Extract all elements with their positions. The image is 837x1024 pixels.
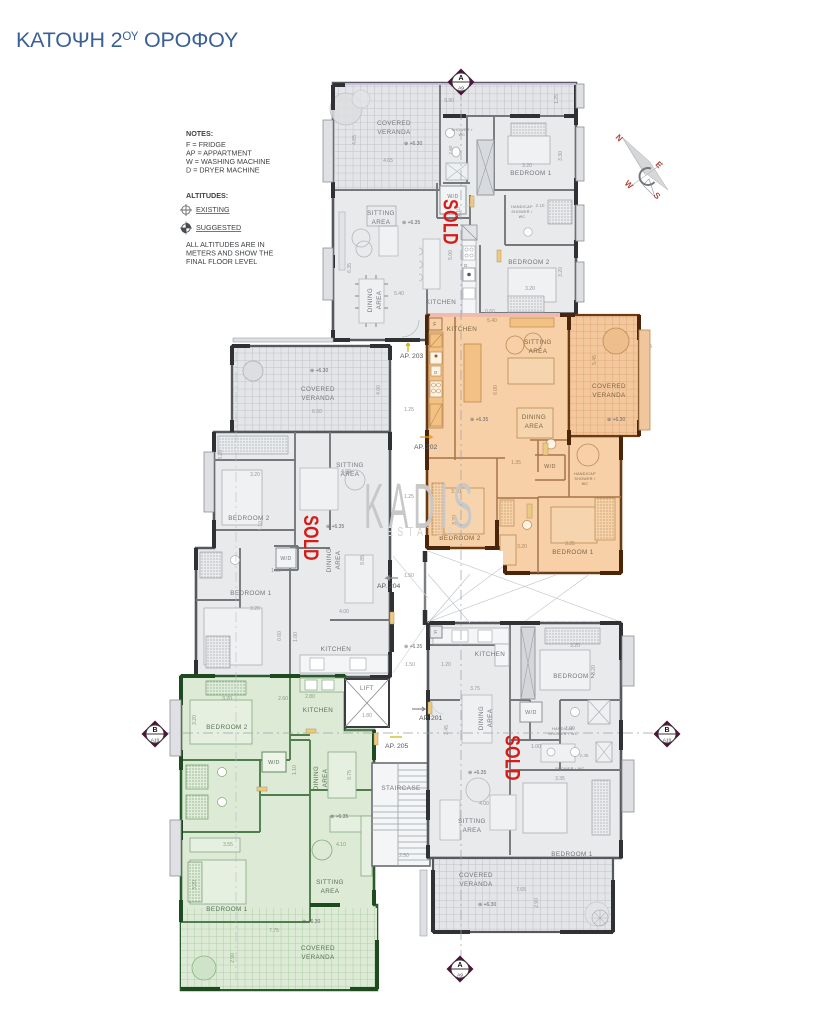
svg-text:⊕ +6.35: ⊕ +6.35	[402, 220, 420, 226]
svg-text:COVERED: COVERED	[592, 383, 626, 390]
svg-text:5.00: 5.00	[448, 250, 454, 260]
svg-text:COVERED: COVERED	[301, 945, 335, 952]
svg-text:SHOWER / WC: SHOWER / WC	[548, 732, 578, 736]
svg-text:3.20: 3.20	[570, 643, 580, 649]
svg-text:B: B	[664, 727, 669, 734]
svg-text:6.50: 6.50	[312, 409, 322, 415]
svg-text:F: F	[433, 322, 436, 328]
svg-text:DINING: DINING	[367, 288, 374, 312]
svg-text:SHOWER /: SHOWER /	[451, 128, 472, 132]
svg-text:BEDROOM 2: BEDROOM 2	[553, 673, 594, 680]
svg-text:SOLD: SOLD	[501, 735, 525, 781]
svg-text:1.00: 1.00	[271, 568, 281, 574]
svg-text:VERANDA: VERANDA	[301, 954, 335, 961]
svg-text:⊕ +6.35: ⊕ +6.35	[330, 814, 348, 820]
svg-text:5.45: 5.45	[592, 355, 598, 365]
svg-text:1.25: 1.25	[554, 94, 560, 104]
svg-text:COVERED: COVERED	[459, 872, 493, 879]
svg-text:BEDROOM 1: BEDROOM 1	[551, 851, 592, 858]
svg-text:2.45: 2.45	[580, 753, 589, 758]
svg-text:ALTITUDES:: ALTITUDES:	[186, 191, 228, 200]
svg-text:DINING: DINING	[326, 548, 333, 572]
svg-text:HANDICAP: HANDICAP	[574, 472, 596, 476]
svg-text:1.00: 1.00	[293, 632, 299, 642]
svg-text:AREA: AREA	[525, 423, 544, 430]
svg-text:9.90: 9.90	[444, 98, 454, 104]
svg-text:ΚΑΤΟΨΗ 2ΟΥ ΟΡΟΦΟΥ: ΚΑΤΟΨΗ 2ΟΥ ΟΡΟΦΟΥ	[16, 28, 238, 52]
svg-text:KITCHEN: KITCHEN	[321, 646, 351, 653]
svg-text:AP. 201: AP. 201	[419, 715, 443, 722]
svg-text:DINING: DINING	[478, 706, 485, 730]
svg-text:1.20: 1.20	[441, 662, 451, 668]
svg-text:4.65: 4.65	[352, 135, 358, 145]
svg-text:KITCHEN: KITCHEN	[475, 651, 505, 658]
svg-text:3.20: 3.20	[558, 267, 564, 277]
svg-text:1.35: 1.35	[511, 460, 521, 466]
svg-text:LIFT: LIFT	[360, 686, 374, 692]
svg-text:6.35: 6.35	[347, 263, 353, 273]
svg-text:A10: A10	[663, 738, 672, 744]
svg-text:2.80: 2.80	[305, 694, 315, 700]
svg-text:SITTING: SITTING	[367, 210, 395, 217]
svg-text:⊕ +6.35: ⊕ +6.35	[404, 644, 422, 650]
svg-text:VERANDA: VERANDA	[459, 881, 493, 888]
svg-text:AREA: AREA	[321, 888, 340, 895]
svg-text:7.65: 7.65	[516, 887, 526, 893]
svg-text:BEDROOM 2: BEDROOM 2	[228, 515, 269, 522]
svg-text:3.35: 3.35	[565, 541, 575, 547]
svg-text:⊕ +6.35: ⊕ +6.35	[470, 417, 488, 423]
svg-text:AP. 202: AP. 202	[414, 444, 438, 451]
svg-text:ESTATES: ESTATES	[387, 526, 457, 540]
svg-text:3.55: 3.55	[223, 842, 233, 848]
svg-text:0.60: 0.60	[277, 631, 283, 641]
svg-text:1.90: 1.90	[565, 726, 575, 732]
svg-text:A: A	[458, 75, 463, 82]
svg-text:W/D: W/D	[544, 464, 556, 470]
svg-text:3.20: 3.20	[222, 696, 232, 702]
svg-text:WC: WC	[459, 133, 466, 137]
svg-text:2.10: 2.10	[536, 203, 545, 208]
svg-text:D: D	[434, 370, 437, 375]
svg-text:1.00: 1.00	[531, 744, 541, 750]
svg-text:AREA: AREA	[529, 348, 548, 355]
svg-text:3.45: 3.45	[444, 725, 450, 735]
svg-text:W: W	[623, 178, 636, 191]
svg-text:D = DRYER MACHINE: D = DRYER MACHINE	[186, 166, 260, 175]
svg-text:4.00: 4.00	[339, 609, 349, 615]
svg-text:3.20: 3.20	[522, 163, 532, 169]
svg-text:1.10: 1.10	[292, 765, 298, 775]
svg-text:AREA: AREA	[376, 290, 383, 309]
svg-text:3.20: 3.20	[591, 665, 597, 675]
svg-text:3.20: 3.20	[192, 715, 198, 725]
svg-text:SITTING: SITTING	[524, 339, 552, 346]
svg-text:B: B	[152, 727, 157, 734]
svg-text:4.00: 4.00	[341, 469, 351, 475]
svg-text:9.85: 9.85	[360, 555, 366, 565]
svg-text:⊕ +6.30: ⊕ +6.30	[404, 141, 422, 147]
svg-text:W/D: W/D	[525, 710, 537, 716]
svg-text:3.75: 3.75	[470, 686, 480, 692]
svg-text:HANDICAP: HANDICAP	[511, 205, 533, 209]
svg-text:AP. 205: AP. 205	[385, 743, 409, 750]
svg-text:⊕ +6.30: ⊕ +6.30	[607, 417, 625, 423]
svg-text:AREA: AREA	[487, 708, 494, 727]
svg-text:SOLD: SOLD	[299, 515, 323, 561]
svg-text:SITTING: SITTING	[458, 818, 486, 825]
svg-text:AREA: AREA	[463, 827, 482, 834]
svg-text:BEDROOM 1: BEDROOM 1	[510, 170, 551, 177]
svg-text:AP. 204: AP. 204	[377, 583, 401, 590]
svg-text:BEDROOM 2: BEDROOM 2	[508, 259, 549, 266]
svg-text:W/D: W/D	[280, 556, 291, 562]
svg-text:3.20: 3.20	[192, 880, 198, 890]
svg-text:WC: WC	[582, 482, 589, 486]
svg-text:3.30: 3.30	[558, 151, 564, 161]
svg-text:SUGGESTED: SUGGESTED	[196, 223, 241, 232]
svg-text:SITTING: SITTING	[336, 462, 364, 469]
svg-text:3.35: 3.35	[555, 776, 565, 782]
svg-text:COVERED: COVERED	[301, 386, 335, 393]
svg-text:2.60: 2.60	[448, 145, 453, 154]
svg-text:⊕ +6.35: ⊕ +6.35	[468, 770, 486, 776]
svg-text:A: A	[457, 962, 462, 969]
svg-text:W/D: W/D	[268, 760, 280, 766]
svg-text:BEDROOM 1: BEDROOM 1	[552, 549, 593, 556]
svg-text:4.00: 4.00	[479, 801, 489, 807]
svg-text:9.75: 9.75	[347, 770, 353, 780]
svg-text:A9: A9	[458, 86, 464, 92]
svg-text:3.20: 3.20	[218, 450, 224, 460]
svg-text:FINAL FLOOR LEVEL: FINAL FLOOR LEVEL	[186, 257, 257, 266]
svg-text:KITCHEN: KITCHEN	[426, 299, 456, 306]
svg-text:⊕ +6.30: ⊕ +6.30	[478, 902, 496, 908]
svg-text:3.20: 3.20	[517, 544, 527, 550]
svg-text:STAIRCASE: STAIRCASE	[381, 785, 420, 792]
svg-text:EXISTING: EXISTING	[196, 205, 230, 214]
svg-text:1.25: 1.25	[404, 407, 414, 413]
svg-text:SHOWER / WC: SHOWER / WC	[555, 767, 585, 771]
svg-text:N: N	[614, 132, 625, 143]
svg-text:DINING: DINING	[313, 766, 320, 790]
svg-text:BEDROOM 1: BEDROOM 1	[206, 906, 247, 913]
svg-text:F: F	[434, 630, 437, 636]
svg-text:KITCHEN: KITCHEN	[303, 707, 333, 714]
svg-text:A9: A9	[457, 973, 463, 979]
svg-text:1.50: 1.50	[404, 573, 414, 579]
svg-text:AREA: AREA	[372, 219, 391, 226]
svg-text:⊕ +6.30: ⊕ +6.30	[302, 919, 320, 925]
svg-text:VERANDA: VERANDA	[377, 129, 411, 136]
svg-text:SHOWER /: SHOWER /	[511, 210, 532, 214]
svg-text:DINING: DINING	[522, 414, 546, 421]
svg-text:1.10: 1.10	[258, 521, 264, 531]
svg-text:2.90: 2.90	[230, 953, 236, 963]
svg-text:COVERED: COVERED	[377, 120, 411, 127]
svg-text:2.60: 2.60	[278, 696, 288, 702]
svg-text:3.20: 3.20	[250, 606, 260, 612]
svg-text:3.20: 3.20	[250, 472, 260, 478]
svg-text:2.50: 2.50	[399, 853, 409, 859]
svg-text:D: D	[464, 263, 467, 268]
svg-text:SITTING: SITTING	[316, 879, 344, 886]
svg-text:⊕ +6.35: ⊕ +6.35	[326, 524, 344, 530]
svg-text:4.10: 4.10	[336, 842, 346, 848]
svg-text:A10: A10	[151, 738, 160, 744]
svg-text:1.80: 1.80	[362, 713, 372, 719]
svg-text:WC: WC	[519, 215, 526, 219]
svg-text:5.40: 5.40	[394, 291, 404, 297]
svg-text:4.65: 4.65	[383, 158, 393, 164]
svg-text:AREA: AREA	[335, 550, 342, 569]
svg-text:BEDROOM 2: BEDROOM 2	[206, 724, 247, 731]
svg-text:7.75: 7.75	[269, 928, 279, 934]
svg-text:SHOWER /: SHOWER /	[574, 477, 595, 481]
svg-text:NOTES:: NOTES:	[186, 129, 213, 138]
svg-text:1.50: 1.50	[405, 662, 415, 668]
svg-text:2.90: 2.90	[534, 898, 540, 908]
svg-text:AP. 203: AP. 203	[400, 353, 424, 360]
svg-text:4.00: 4.00	[376, 385, 382, 395]
svg-text:VERANDA: VERANDA	[301, 395, 335, 402]
svg-text:VERANDA: VERANDA	[592, 392, 626, 399]
svg-text:SOLD: SOLD	[439, 199, 463, 245]
svg-text:⊕ +6.30: ⊕ +6.30	[310, 368, 328, 374]
svg-text:3.20: 3.20	[525, 286, 535, 292]
svg-text:5.40: 5.40	[487, 318, 497, 324]
svg-text:KITCHEN: KITCHEN	[447, 326, 477, 333]
svg-text:AREA: AREA	[322, 768, 329, 787]
svg-text:6.00: 6.00	[493, 385, 499, 395]
svg-text:BEDROOM 1: BEDROOM 1	[230, 590, 271, 597]
